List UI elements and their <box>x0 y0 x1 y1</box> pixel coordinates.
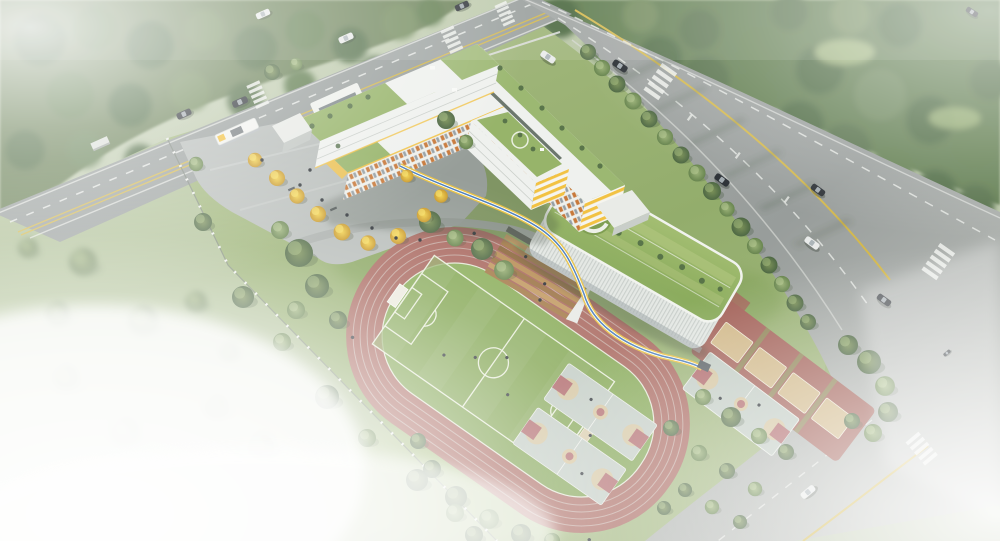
campus-aerial-rendering <box>0 0 1000 541</box>
mist <box>0 0 1000 541</box>
